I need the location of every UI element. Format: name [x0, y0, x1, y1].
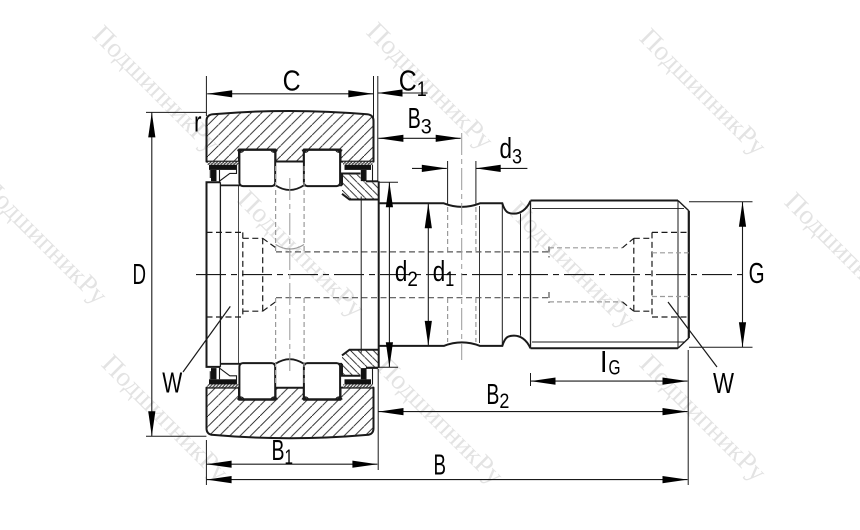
svg-text:W: W [162, 368, 182, 400]
svg-text:d2: d2 [395, 256, 418, 291]
svg-text:ПодшипникРу: ПодшипникРу [87, 19, 226, 158]
svg-text:B3: B3 [408, 103, 432, 139]
svg-text:B2: B2 [486, 379, 509, 413]
svg-text:ПодшипникРу: ПодшипникРу [634, 22, 773, 161]
svg-text:r: r [194, 107, 202, 139]
svg-text:ПодшипникРу: ПодшипникРу [634, 348, 773, 487]
svg-text:B1: B1 [272, 435, 294, 469]
svg-text:d1: d1 [433, 256, 455, 291]
svg-text:lG: lG [601, 347, 621, 380]
svg-text:ПодшипникРу: ПодшипникРу [0, 171, 114, 310]
svg-text:d3: d3 [500, 133, 523, 169]
svg-text:C: C [283, 66, 301, 98]
svg-text:W: W [713, 368, 734, 400]
svg-text:G: G [749, 258, 765, 290]
svg-text:ПодшипникРу: ПодшипникРу [503, 195, 642, 334]
svg-text:ПодшипникРу: ПодшипникРу [232, 184, 371, 323]
svg-text:ПодшипникРу: ПодшипникРу [779, 186, 860, 325]
svg-text:D: D [133, 259, 147, 291]
svg-text:B: B [434, 450, 447, 482]
